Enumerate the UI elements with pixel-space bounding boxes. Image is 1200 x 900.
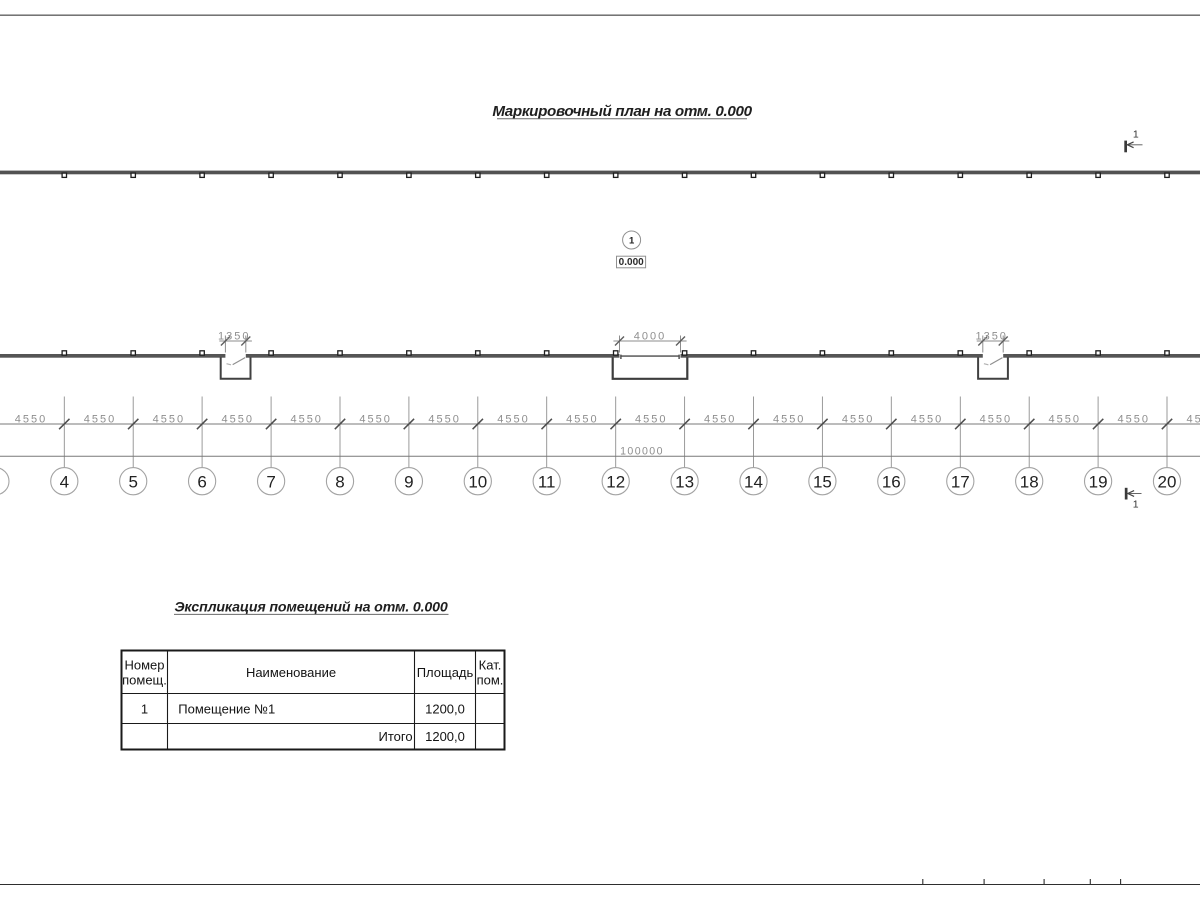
svg-text:4550: 4550 xyxy=(1049,413,1081,425)
svg-text:4550: 4550 xyxy=(635,413,667,425)
svg-text:15: 15 xyxy=(813,472,832,491)
svg-text:19: 19 xyxy=(1089,472,1108,491)
svg-text:4550: 4550 xyxy=(1186,413,1200,425)
svg-text:4550: 4550 xyxy=(359,413,391,425)
svg-text:4550: 4550 xyxy=(153,413,185,425)
svg-text:1200,0: 1200,0 xyxy=(425,702,465,717)
svg-text:4550: 4550 xyxy=(15,413,47,425)
svg-text:Наименование: Наименование xyxy=(246,665,336,680)
svg-text:пом.: пом. xyxy=(477,673,504,688)
svg-text:помещ.: помещ. xyxy=(122,673,167,688)
svg-text:14: 14 xyxy=(744,472,763,491)
svg-text:Экспликация помещений на отм.: Экспликация помещений на отм. 0.000 xyxy=(174,600,448,616)
svg-text:1350: 1350 xyxy=(975,331,1007,343)
svg-text:4550: 4550 xyxy=(290,413,322,425)
svg-text:9: 9 xyxy=(404,472,413,491)
svg-text:5: 5 xyxy=(128,472,137,491)
svg-text:4000: 4000 xyxy=(634,331,666,343)
svg-text:Итого: Итого xyxy=(379,729,413,744)
svg-text:Кат.: Кат. xyxy=(479,658,502,673)
svg-text:17: 17 xyxy=(951,472,970,491)
svg-text:20: 20 xyxy=(1158,472,1177,491)
svg-text:13: 13 xyxy=(675,472,694,491)
svg-text:0.000: 0.000 xyxy=(619,257,644,268)
svg-text:4550: 4550 xyxy=(222,413,254,425)
svg-text:4550: 4550 xyxy=(704,413,736,425)
svg-text:1: 1 xyxy=(141,702,148,717)
svg-text:Помещение №1: Помещение №1 xyxy=(178,702,275,717)
svg-text:8: 8 xyxy=(335,472,344,491)
svg-text:4550: 4550 xyxy=(1118,413,1150,425)
svg-text:1: 1 xyxy=(629,235,635,246)
svg-text:100000: 100000 xyxy=(620,445,664,457)
svg-text:1: 1 xyxy=(1133,129,1139,141)
svg-text:4: 4 xyxy=(60,472,69,491)
svg-text:18: 18 xyxy=(1020,472,1039,491)
svg-text:Номер: Номер xyxy=(124,658,164,673)
svg-text:16: 16 xyxy=(882,472,901,491)
svg-text:4550: 4550 xyxy=(773,413,805,425)
svg-text:4550: 4550 xyxy=(84,413,116,425)
svg-text:Маркировочный план на отм. 0.0: Маркировочный план на отм. 0.000 xyxy=(492,103,752,120)
svg-text:4550: 4550 xyxy=(428,413,460,425)
svg-text:Площадь: Площадь xyxy=(417,665,474,680)
svg-text:1200,0: 1200,0 xyxy=(425,729,465,744)
svg-text:4550: 4550 xyxy=(911,413,943,425)
svg-text:4550: 4550 xyxy=(497,413,529,425)
svg-text:12: 12 xyxy=(606,472,625,491)
svg-text:4550: 4550 xyxy=(842,413,874,425)
svg-text:4550: 4550 xyxy=(980,413,1012,425)
svg-text:1350: 1350 xyxy=(218,331,250,343)
svg-text:10: 10 xyxy=(468,472,487,491)
svg-text:11: 11 xyxy=(538,472,556,491)
svg-text:7: 7 xyxy=(266,472,275,491)
svg-text:6: 6 xyxy=(197,472,206,491)
svg-text:4550: 4550 xyxy=(566,413,598,425)
svg-text:1: 1 xyxy=(1133,498,1139,510)
